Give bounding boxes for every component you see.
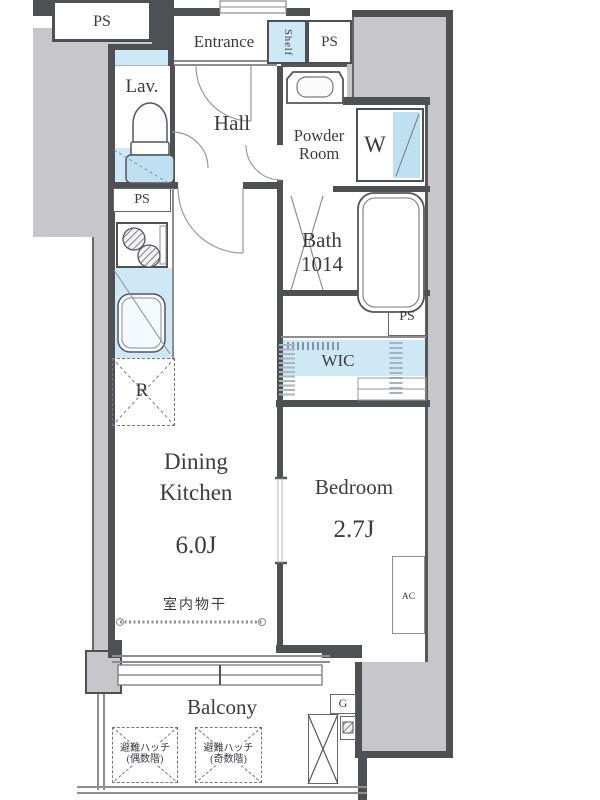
fixtures-overlay [0,0,600,800]
floor-plan: PS Entrance Shelf PS Lav. Hall Powder Ro… [0,0,600,800]
